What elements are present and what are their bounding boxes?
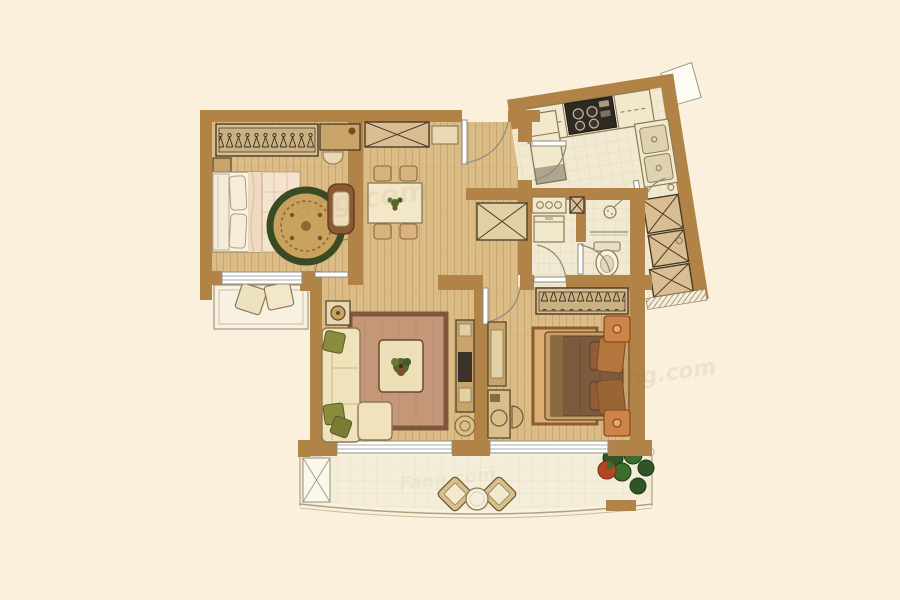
balcony-wall-bit [606, 500, 636, 511]
blanket-fold [248, 172, 262, 252]
nightstand [213, 158, 231, 173]
bay-window [214, 282, 308, 329]
green-pillow [322, 330, 346, 354]
second-bedroom-window [490, 441, 608, 453]
wardrobe [536, 288, 628, 314]
basin-counter [532, 197, 566, 213]
entry-shelf [432, 126, 458, 144]
vanity [488, 390, 510, 438]
washing-machine [534, 216, 564, 242]
storage-box [570, 197, 584, 213]
sideboard [365, 122, 429, 147]
toilet [594, 242, 620, 276]
desk [488, 322, 506, 386]
side-table [326, 301, 350, 325]
shoe-cabinet [477, 203, 527, 240]
bay-window-glass [222, 272, 302, 284]
wardrobe [216, 124, 318, 156]
tv-cabinet [456, 320, 474, 412]
pillow [229, 176, 247, 211]
balcony-storage-cabinet [303, 450, 330, 502]
tv [458, 352, 472, 382]
pillow [229, 214, 247, 249]
floor-plan: Fang.com Fang.com Fang.com [0, 0, 900, 600]
floor-plan-canvas: Fang.com Fang.com Fang.com [0, 0, 900, 600]
coffee-table [379, 340, 423, 392]
balcony-table [466, 488, 488, 510]
living-room-window [337, 441, 452, 453]
pouf [455, 416, 475, 436]
east-wall [630, 197, 645, 443]
cushion [264, 282, 294, 311]
